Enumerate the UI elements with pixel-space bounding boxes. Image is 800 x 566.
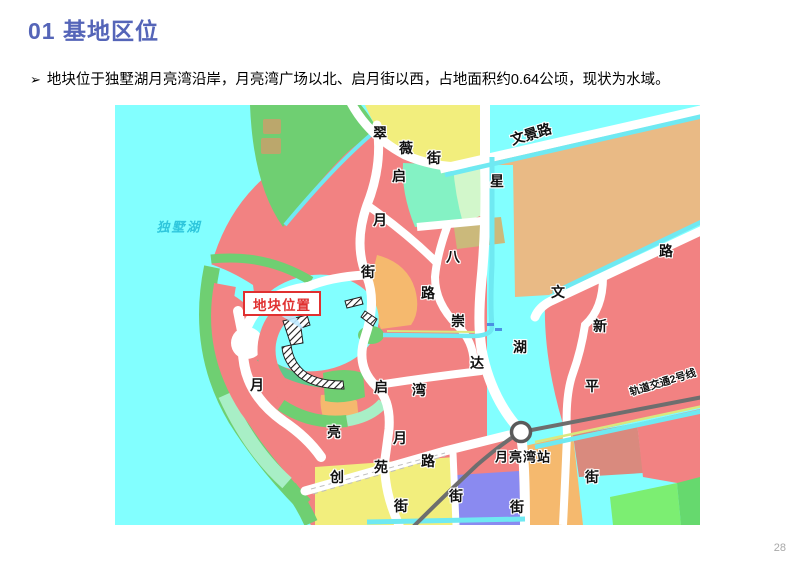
page-number: 28	[774, 542, 786, 554]
street-label: 苑	[374, 460, 388, 474]
street-label: 月	[250, 378, 264, 392]
street-label: 湾	[412, 383, 426, 397]
street-label: 月	[373, 213, 387, 227]
location-map: 翠薇街启月街星湖街文景路路文八路崇达湾启月新平街亮月创苑路街街月亮湾站轨道交通2…	[115, 105, 700, 525]
presentation-slide: 01 基地区位 ➢地块位于独墅湖月亮湾沿岸，月亮湾广场以北、启月街以西，占地面积…	[0, 0, 800, 566]
map-labels-layer: 翠薇街启月街星湖街文景路路文八路崇达湾启月新平街亮月创苑路街街月亮湾站轨道交通2…	[115, 105, 700, 525]
bullet-line: ➢地块位于独墅湖月亮湾沿岸，月亮湾广场以北、启月街以西，占地面积约0.64公顷，…	[30, 68, 778, 89]
street-label: 薇	[399, 141, 413, 155]
street-label: 街	[585, 470, 599, 484]
rail-label: 轨道交通2号线	[629, 368, 698, 398]
bullet-arrow-icon: ➢	[30, 72, 41, 87]
page-title: 01 基地区位	[28, 12, 159, 46]
lake-label: 独墅湖	[156, 221, 201, 234]
street-label: 文	[551, 285, 565, 299]
street-label: 文景路	[509, 121, 553, 147]
street-label: 亮	[327, 425, 341, 439]
street-label: 创	[330, 470, 344, 484]
street-label: 新	[593, 319, 607, 333]
street-label: 星	[490, 174, 504, 188]
street-label: 街	[394, 499, 408, 513]
plot-location-callout: 地块位置	[243, 291, 321, 316]
station-label: 月亮湾站	[495, 451, 551, 464]
street-label: 街	[427, 151, 441, 165]
street-label: 翠	[373, 126, 387, 140]
street-label: 八	[446, 250, 460, 264]
street-label: 月	[393, 431, 407, 445]
street-label: 湖	[513, 340, 527, 354]
street-label: 平	[585, 379, 599, 393]
street-label: 崇	[451, 314, 465, 328]
street-label: 路	[421, 454, 435, 468]
bullet-text: 地块位于独墅湖月亮湾沿岸，月亮湾广场以北、启月街以西，占地面积约0.64公顷，现…	[47, 72, 670, 88]
street-label: 达	[470, 356, 484, 370]
street-label: 街	[449, 489, 463, 503]
street-label: 启	[374, 380, 388, 394]
plot-location-text: 地块位置	[253, 294, 311, 314]
street-label: 街	[361, 265, 375, 279]
street-label: 启	[392, 169, 406, 183]
street-label: 路	[421, 286, 435, 300]
street-label: 路	[659, 244, 673, 258]
street-label: 街	[510, 500, 524, 514]
